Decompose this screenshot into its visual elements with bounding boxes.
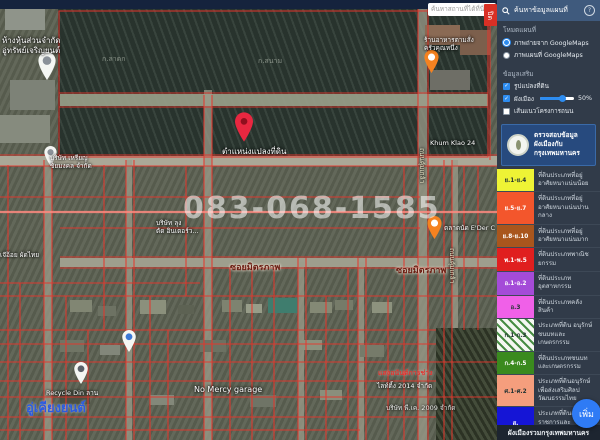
road-label: ซอยมิตรภาพ xyxy=(396,266,446,277)
bangkok-cityplan-banner[interactable]: ตรวจสอบข้อมูลผังเมืองกับ กรุงเทพมหานคร xyxy=(501,124,596,166)
map-label: Khum Klao 24 xyxy=(430,139,475,147)
map-mode-section: โหมดแผนที่ ภาพถ่ายจาก GoogleMaps ภาพแผนท… xyxy=(497,21,600,65)
sidebar-title: ค้นหาข้อมูลแผนที่ xyxy=(514,5,580,16)
phone-watermark: 083-068-1585 xyxy=(183,191,441,226)
option-label: ภาพแผนที่ GoogleMaps xyxy=(514,50,583,60)
slider-value: 50% xyxy=(578,95,592,102)
mode-option-map[interactable]: ภาพแผนที่ GoogleMaps xyxy=(503,50,594,60)
zone-desc: ที่ดินประเภทอุตสาหกรรม xyxy=(534,272,600,295)
zone-desc: ที่ดินประเภทที่อยู่อาศัยหนาแน่นมาก xyxy=(534,225,600,248)
map-label: Recycle Din ลาน xyxy=(46,389,98,397)
poi-pin-orange-icon xyxy=(424,50,439,73)
zone-swatch: พ.1-พ.5 xyxy=(497,248,534,271)
zone-desc: ที่ดินประเภทพาณิชยกรรม xyxy=(534,248,600,271)
section-label: ข้อมูลเสริม xyxy=(503,69,594,79)
bangkok-seal-icon xyxy=(507,134,529,156)
legend-row: ย.8-ย.10ที่ดินประเภทที่อยู่อาศัยหนาแน่นม… xyxy=(497,225,600,249)
zone-swatch: ย.8-ย.10 xyxy=(497,225,534,248)
option-label: ผังเมือง xyxy=(514,94,534,104)
road-label: ถนนคุ้มเกล้า xyxy=(418,148,426,183)
map-label: เจ๊อ้อย ผัดไทย xyxy=(0,251,39,259)
zoning-legend: ย.1-ย.4ที่ดินประเภทที่อยู่อาศัยหนาแน่นน้… xyxy=(497,169,600,425)
option-label: รูปแปลงที่ดิน xyxy=(514,81,549,91)
poi-pin-icon xyxy=(74,362,88,384)
zone-desc: ที่ดินประเภทคลังสินค้า xyxy=(534,296,600,319)
top-bar xyxy=(0,0,497,9)
sidebar-header: ค้นหาข้อมูลแผนที่ ? xyxy=(497,0,600,21)
map-label: แสงอนันต์การช่าง xyxy=(378,369,433,378)
legend-row: อ.3ที่ดินประเภทคลังสินค้า xyxy=(497,296,600,320)
radio-selected-icon[interactable] xyxy=(503,39,510,46)
map-label: บริษัท เหรียญ ชัยมงคล จำกัด xyxy=(50,154,92,170)
mode-option-satellite[interactable]: ภาพถ่ายจาก GoogleMaps xyxy=(503,38,594,48)
zone-desc: ที่ดินประเภทที่อยู่อาศัยหนาแน่นปานกลาง xyxy=(534,192,600,223)
legend-row: ก.1-ก.3ประเภทที่ดิน อนุรักษ์ชนบทและเกษตร… xyxy=(497,319,600,351)
zone-swatch: อ.1-อ.2 xyxy=(497,272,534,295)
legend-row: ย.1-ย.4ที่ดินประเภทที่อยู่อาศัยหนาแน่นน้… xyxy=(497,169,600,193)
option-label: ภาพถ่ายจาก GoogleMaps xyxy=(514,38,589,48)
app-window: ห้างหุ้นส่วนจำกัด อู่ทรัพย์เจริญยนต์ ก.ล… xyxy=(0,0,600,440)
search-icon xyxy=(502,7,510,15)
section-label: โหมดแผนที่ xyxy=(503,25,594,35)
zone-swatch: ศ.1-ศ.2 xyxy=(497,375,534,406)
poi-pin-icon xyxy=(122,330,136,352)
slider-knob[interactable] xyxy=(559,95,566,102)
opacity-slider[interactable] xyxy=(540,97,574,100)
map-label: ไลท์ติ้ง 2014 จำกัด xyxy=(377,382,432,390)
zone-desc: ประเภทที่ดิน อนุรักษ์ชนบทและเกษตรกรรม xyxy=(534,319,600,350)
checkbox-unchecked-icon[interactable] xyxy=(503,108,510,115)
zone-swatch: ก.4-ก.5 xyxy=(497,352,534,375)
banner-text: ตรวจสอบข้อมูลผังเมืองกับ กรุงเทพมหานคร xyxy=(534,131,590,159)
map-label: ห้างหุ้นส่วนจำกัด อู่ทรัพย์เจริญยนต์ xyxy=(2,36,60,56)
map-label: ตลาดนัด E'Der C xyxy=(444,224,495,232)
zone-swatch: ย.1-ย.4 xyxy=(497,169,534,192)
radio-unselected-icon[interactable] xyxy=(503,52,510,59)
legend-row: อ.1-อ.2ที่ดินประเภทอุตสาหกรรม xyxy=(497,272,600,296)
legend-row: พ.1-พ.5ที่ดินประเภทพาณิชยกรรม xyxy=(497,248,600,272)
map-label: ร้านอาหารตามสั่ง ครัวคุณหนึ่ง xyxy=(424,36,474,52)
toggle-road-projects[interactable]: เส้นแนวโครงการถนน xyxy=(503,106,594,116)
checkbox-checked-icon[interactable]: ✓ xyxy=(503,95,510,102)
zone-swatch-hatched: ก.1-ก.3 xyxy=(497,319,534,350)
legend-row: ก.4-ก.5ที่ดินประเภทชนบทและเกษตรกรรม xyxy=(497,352,600,376)
zone-swatch: ส. xyxy=(497,407,534,425)
extra-data-section: ข้อมูลเสริม ✓ รูปแปลงที่ดิน ✓ ผังเมือง 5… xyxy=(497,65,600,121)
add-button[interactable]: เพิ่ม xyxy=(572,399,600,428)
parcel-location-label: ตำแหน่งแปลงที่ดิน xyxy=(222,147,286,157)
zone-swatch: อ.3 xyxy=(497,296,534,319)
map-label: บริษัท พี.เค. 2009 จำกัด xyxy=(386,404,456,412)
map-canvas[interactable]: ห้างหุ้นส่วนจำกัด อู่ทรัพย์เจริญยนต์ ก.ล… xyxy=(0,0,497,440)
help-icon[interactable]: ? xyxy=(584,5,595,16)
road-label: ถนนคุ้มเกล้า xyxy=(448,248,456,283)
poi-pin-icon xyxy=(38,52,56,80)
zone-swatch: ย.5-ย.7 xyxy=(497,192,534,223)
zone-desc: ที่ดินประเภทที่อยู่อาศัยหนาแน่นน้อย xyxy=(534,169,600,192)
map-label: ก.สนาม xyxy=(258,57,282,66)
toggle-parcel-shapes[interactable]: ✓ รูปแปลงที่ดิน xyxy=(503,81,594,91)
map-label: No Mercy garage xyxy=(194,385,262,395)
zone-desc: ที่ดินประเภทชนบทและเกษตรกรรม xyxy=(534,352,600,375)
checkbox-checked-icon[interactable]: ✓ xyxy=(503,83,510,90)
road-label: ซอยมิตรภาพ xyxy=(230,263,280,274)
map-label: ก.ลาดก xyxy=(102,55,125,64)
map-label: อู่เคียงยนต์ xyxy=(26,401,86,417)
parcel-marker-icon[interactable] xyxy=(235,112,253,142)
close-panel-tab[interactable]: ปิด xyxy=(484,4,497,26)
legend-row: ย.5-ย.7ที่ดินประเภทที่อยู่อาศัยหนาแน่นปา… xyxy=(497,192,600,224)
map-settings-sidebar: ค้นหาข้อมูลแผนที่ ? โหมดแผนที่ ภาพถ่ายจา… xyxy=(497,0,600,440)
option-label: เส้นแนวโครงการถนน xyxy=(514,106,573,116)
toggle-city-plan[interactable]: ✓ ผังเมือง 50% xyxy=(503,94,594,104)
